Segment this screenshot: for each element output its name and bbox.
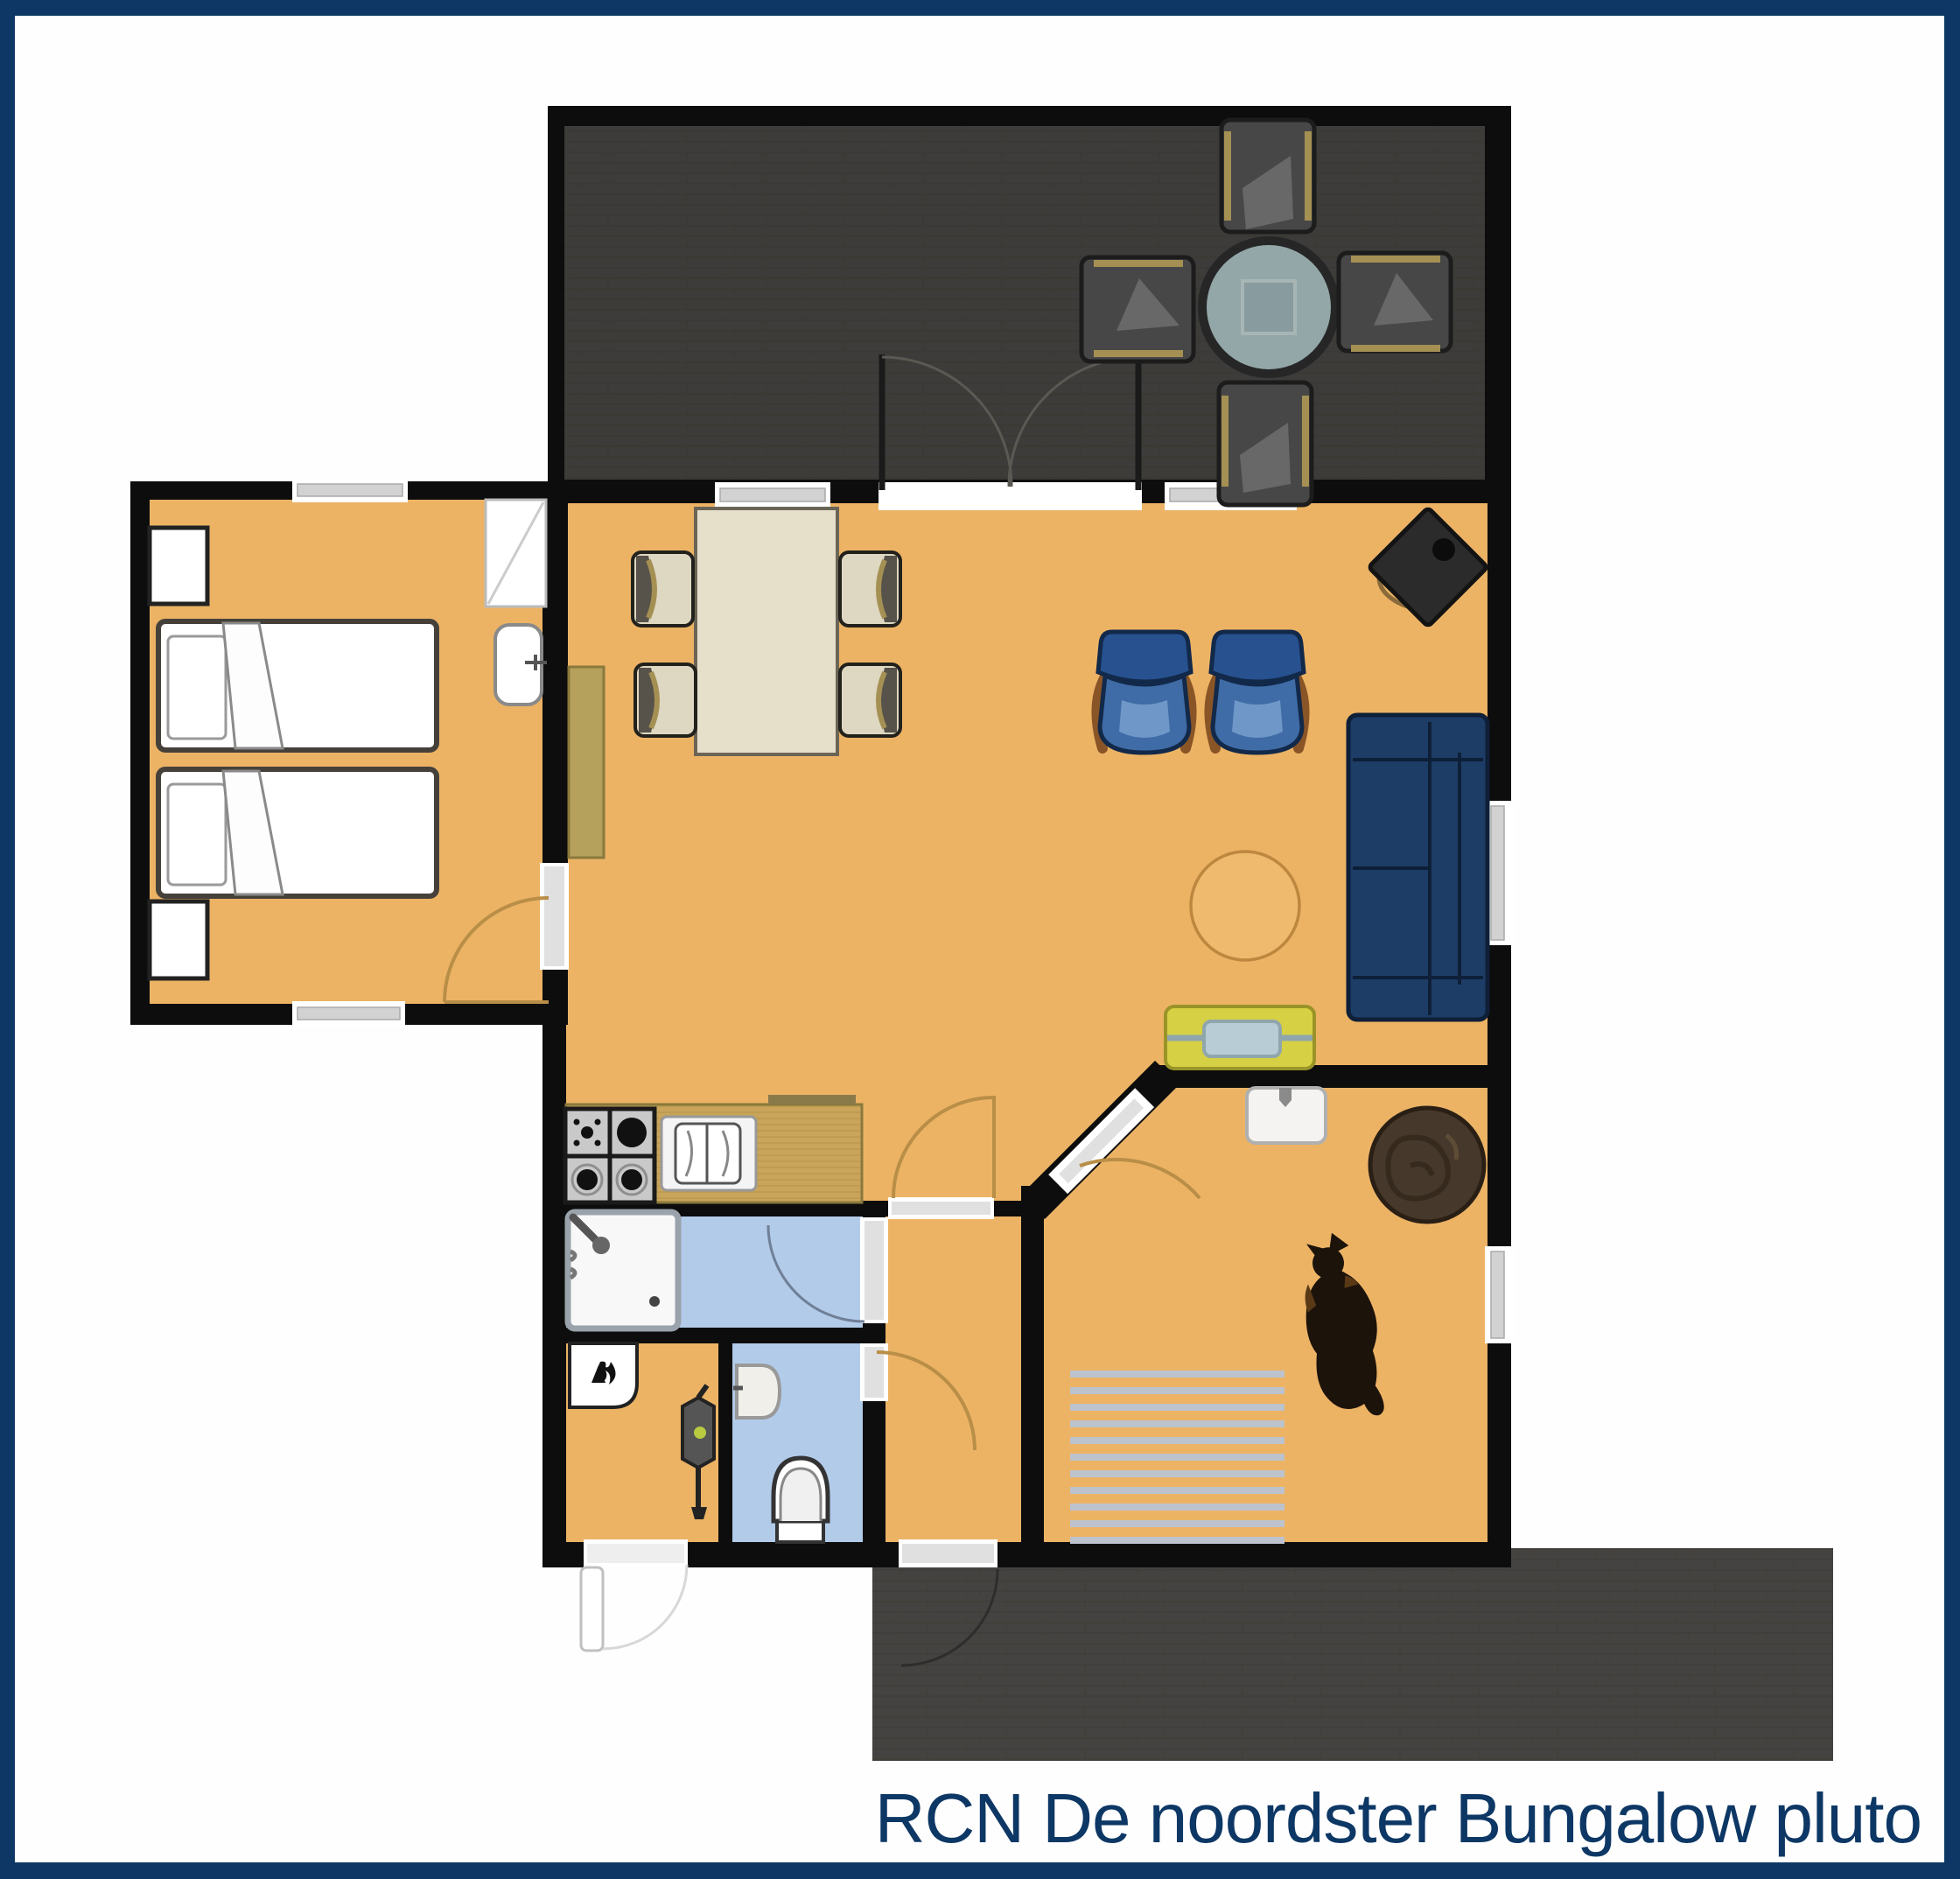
svg-text:RCN De noordster Bungalow plut: RCN De noordster Bungalow pluto <box>875 1779 1921 1857</box>
